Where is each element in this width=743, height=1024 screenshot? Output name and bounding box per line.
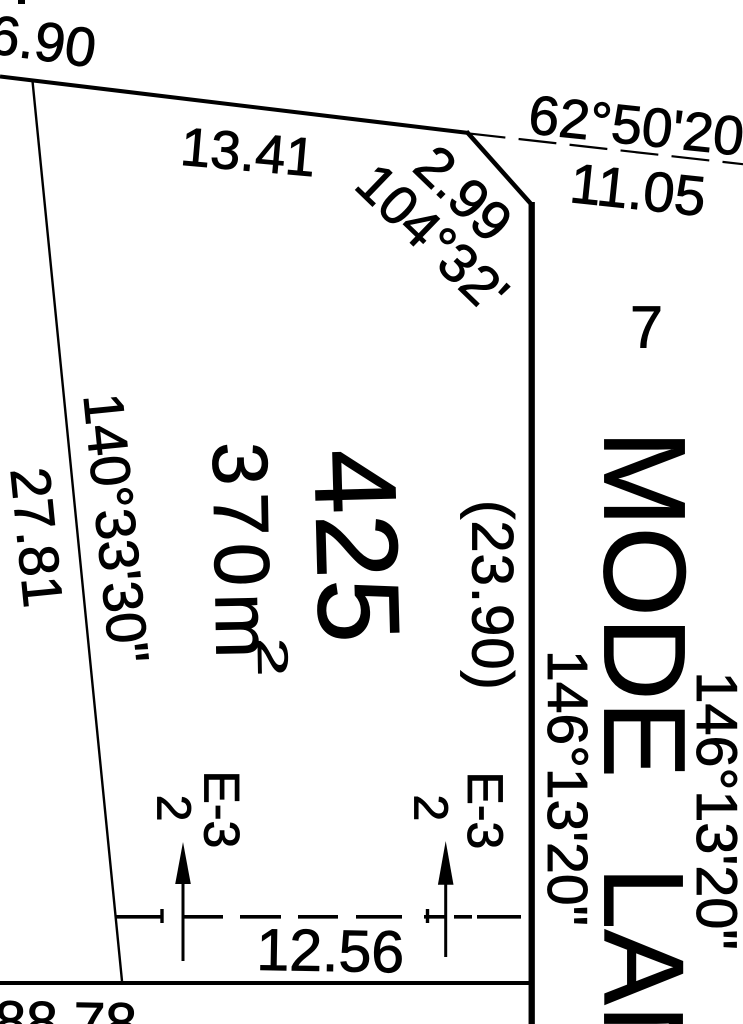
svg-text:2: 2 xyxy=(248,637,296,676)
svg-text:2: 2 xyxy=(147,795,200,822)
svg-text:7: 7 xyxy=(630,294,663,360)
svg-text:13.41: 13.41 xyxy=(178,117,318,189)
svg-text:88.78: 88.78 xyxy=(0,990,138,1024)
svg-text:E-3: E-3 xyxy=(457,772,513,850)
svg-text:370m: 370m xyxy=(196,441,288,666)
svg-text:27.81: 27.81 xyxy=(0,464,75,610)
svg-text:2: 2 xyxy=(404,795,457,822)
svg-text:425: 425 xyxy=(289,448,424,645)
svg-text:E-3: E-3 xyxy=(194,771,250,849)
svg-text:(23.90): (23.90) xyxy=(460,500,525,691)
svg-text:LAN: LAN xyxy=(580,867,706,1024)
svg-text:12.56: 12.56 xyxy=(256,917,405,986)
svg-text:MODE: MODE xyxy=(579,430,709,778)
